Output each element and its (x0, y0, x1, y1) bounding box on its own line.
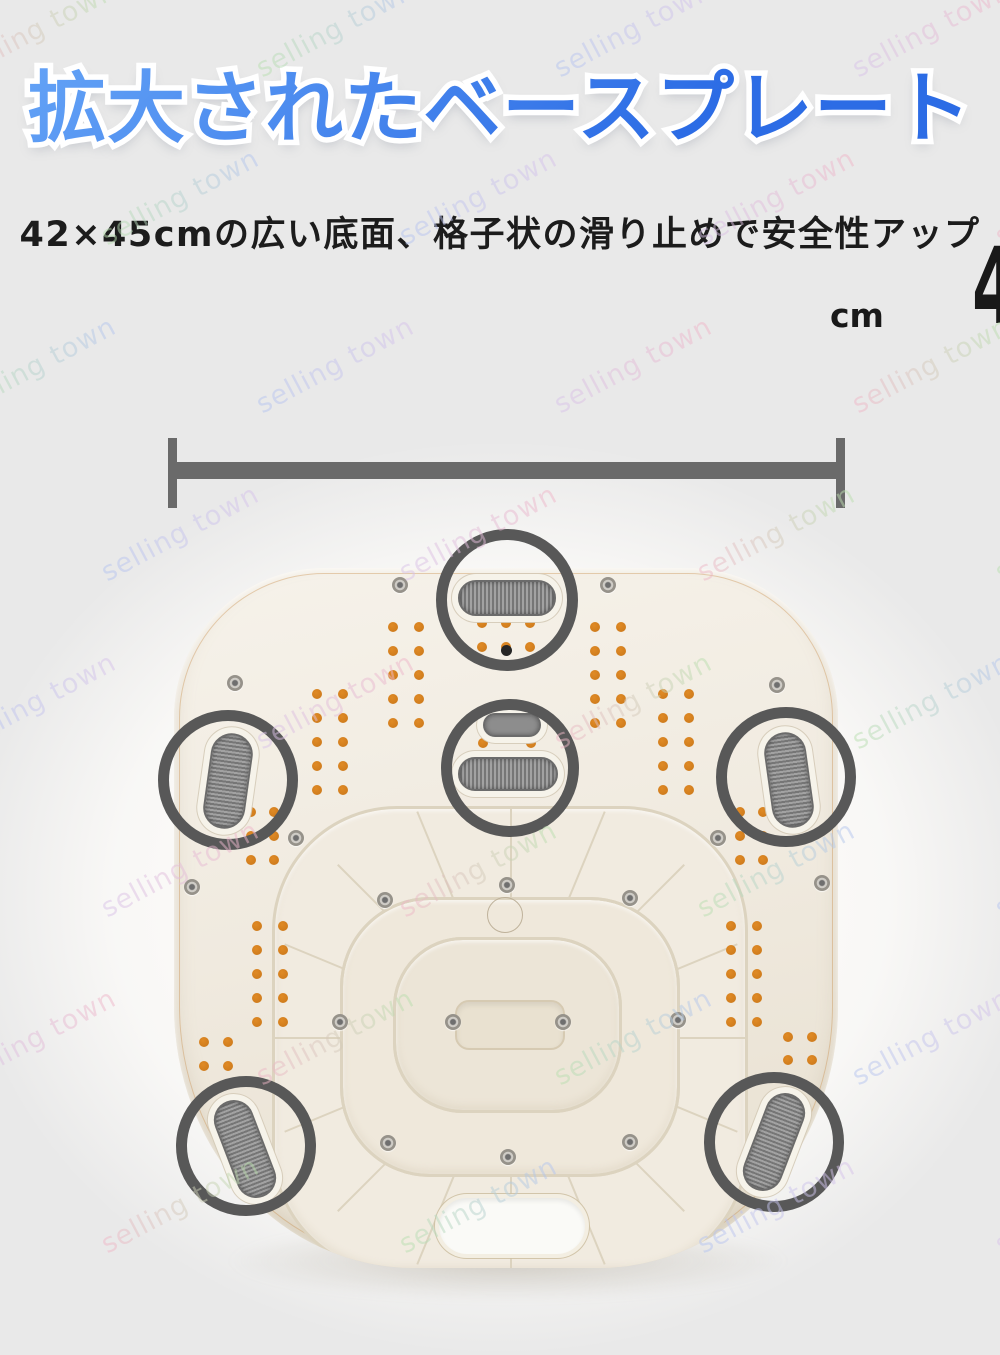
page-title-text: 拡大されたベースプレート (28, 64, 972, 154)
highlight-ring (716, 707, 856, 847)
screw (377, 892, 393, 908)
vent-dot (684, 689, 694, 699)
vent-dot (783, 1055, 793, 1065)
vent-dot (590, 622, 600, 632)
vent-dot (726, 1017, 736, 1027)
screw (288, 830, 304, 846)
vent-dot (338, 761, 348, 771)
vent-dot (684, 713, 694, 723)
vent-dot (338, 785, 348, 795)
screw (814, 875, 830, 891)
vent-dot (658, 737, 668, 747)
center-boss-circle (487, 897, 523, 933)
vent-dot (807, 1032, 817, 1042)
vent-dot (388, 718, 398, 728)
vent-dot (752, 969, 762, 979)
vent-dot (269, 855, 279, 865)
vent-dot (312, 689, 322, 699)
vent-dot (684, 785, 694, 795)
highlight-ring (441, 699, 579, 837)
vent-dot (616, 622, 626, 632)
vent-dot (199, 1037, 209, 1047)
vent-dot (616, 670, 626, 680)
highlight-ring (436, 529, 578, 671)
vent-dot (278, 921, 288, 931)
vent-dot (278, 993, 288, 1003)
vent-dot (752, 993, 762, 1003)
vent-dot (616, 694, 626, 704)
vent-dot (252, 969, 262, 979)
vent-dot (658, 785, 668, 795)
vent-dot (414, 718, 424, 728)
vent-dot (252, 1017, 262, 1027)
vent-dot (312, 713, 322, 723)
screw (227, 675, 243, 691)
screw (600, 577, 616, 593)
dimension-unit: cm (830, 299, 884, 334)
screw (499, 877, 515, 893)
vent-dot (616, 646, 626, 656)
vent-dot (726, 921, 736, 931)
screw (555, 1014, 571, 1030)
vent-dot (338, 689, 348, 699)
vent-dot (684, 761, 694, 771)
screw (380, 1135, 396, 1151)
vent-dot (223, 1061, 233, 1071)
vent-dot (726, 993, 736, 1003)
vent-dot (658, 689, 668, 699)
screw (622, 890, 638, 906)
screw (769, 677, 785, 693)
screw (670, 1012, 686, 1028)
vent-dot (312, 737, 322, 747)
vent-dot (758, 855, 768, 865)
vent-dot (590, 694, 600, 704)
screw (332, 1014, 348, 1030)
vent-dot (590, 670, 600, 680)
vent-dot (752, 1017, 762, 1027)
vent-dot (199, 1061, 209, 1071)
handle-hole (439, 1198, 585, 1254)
highlight-ring (158, 710, 298, 850)
screw (500, 1149, 516, 1165)
vent-dot (246, 855, 256, 865)
vent-dot (752, 945, 762, 955)
vent-dot (726, 969, 736, 979)
vent-dot (312, 761, 322, 771)
vent-dot (616, 718, 626, 728)
vent-dot (735, 855, 745, 865)
vent-dot (388, 670, 398, 680)
vent-dot (658, 761, 668, 771)
vent-dot (338, 713, 348, 723)
vent-dot (278, 969, 288, 979)
vent-dot (783, 1032, 793, 1042)
vent-dot (590, 646, 600, 656)
dimension-line-bar (171, 462, 842, 479)
screw (710, 830, 726, 846)
page-title: 拡大されたベースプレート 拡大されたベースプレート (28, 66, 972, 153)
screw (184, 879, 200, 895)
subtitle: 42×45cmの広い底面、格子状の滑り止めで安全性アップ (20, 206, 981, 257)
vent-dot (414, 646, 424, 656)
vent-dot (223, 1037, 233, 1047)
vent-dot (252, 993, 262, 1003)
highlight-ring (176, 1076, 316, 1216)
screw (445, 1014, 461, 1030)
vent-dot (252, 945, 262, 955)
vent-dot (312, 785, 322, 795)
vent-dot (252, 921, 262, 931)
vent-dot (278, 1017, 288, 1027)
vent-dot (684, 737, 694, 747)
highlight-ring (704, 1072, 844, 1212)
dimension-value: 42×45 (972, 239, 1000, 334)
vent-dot (414, 670, 424, 680)
center-recess (455, 1000, 565, 1050)
vent-dot (590, 718, 600, 728)
vent-dot (338, 737, 348, 747)
vent-dot (752, 921, 762, 931)
vent-dot (807, 1055, 817, 1065)
dimension-line-right-cap (836, 438, 845, 508)
vent-dot (414, 622, 424, 632)
vent-dot (278, 945, 288, 955)
vent-dot (388, 694, 398, 704)
vent-dot (658, 713, 668, 723)
screw (622, 1134, 638, 1150)
header: 拡大されたベースプレート 拡大されたベースプレート 42×45cmの広い底面、格… (0, 0, 1000, 270)
vent-dot (388, 646, 398, 656)
vent-dot (414, 694, 424, 704)
screw (392, 577, 408, 593)
vent-dot (726, 945, 736, 955)
vent-dot (388, 622, 398, 632)
dimension-line (168, 438, 845, 508)
infographic-canvas: 拡大されたベースプレート 拡大されたベースプレート 42×45cmの広い底面、格… (0, 0, 1000, 1355)
